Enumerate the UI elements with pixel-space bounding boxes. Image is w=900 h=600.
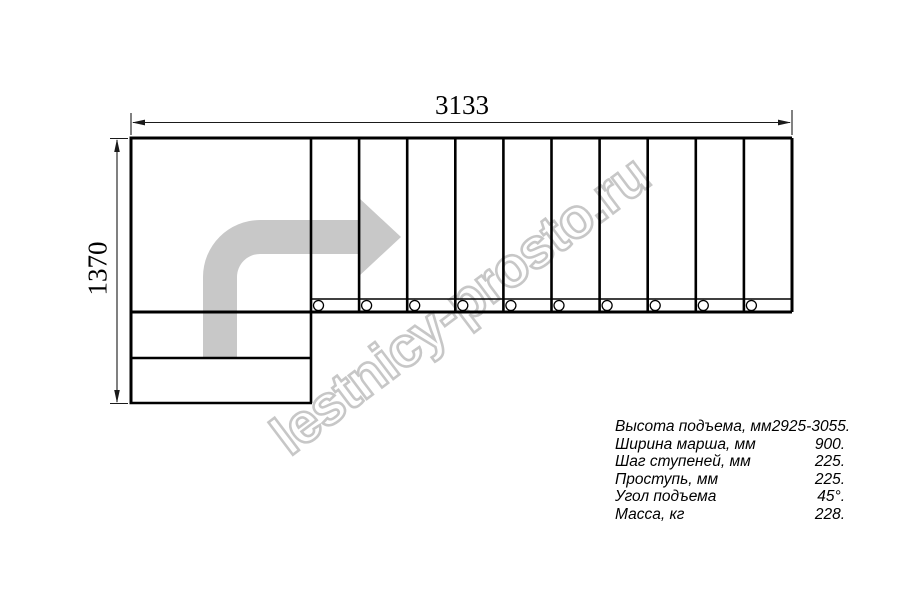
spec-row: Высота подъема, мм 2925-3055.	[615, 418, 845, 436]
spec-table: Высота подъема, мм 2925-3055. Ширина мар…	[615, 418, 845, 524]
tread-pin-circle	[314, 301, 324, 311]
spec-row: Угол подъема 45°.	[615, 488, 845, 506]
spec-label: Высота подъема, мм	[615, 418, 772, 436]
turn-right-arrow-icon	[203, 197, 401, 359]
tread-lines	[311, 138, 744, 403]
dim-arrow-down-icon	[114, 390, 120, 403]
tread-pin-circle	[362, 301, 372, 311]
tread-pin-circle	[650, 301, 660, 311]
width-dimension-label: 3133	[402, 90, 522, 121]
spec-value: 225.	[815, 471, 845, 489]
staircase-plan-drawing: lestnicy-prosto.ru	[0, 0, 900, 600]
spec-value: 225.	[815, 453, 845, 471]
spec-value: 900.	[815, 436, 845, 454]
spec-row: Ширина марша, мм 900.	[615, 436, 845, 454]
dim-arrow-right-icon	[778, 120, 791, 126]
tread-pin-circle	[458, 301, 468, 311]
spec-label: Угол подъема	[615, 488, 716, 506]
tread-pin-circle	[602, 301, 612, 311]
tread-pin-circle	[698, 301, 708, 311]
dim-arrow-up-icon	[114, 139, 120, 152]
spec-row: Проступь, мм 225.	[615, 471, 845, 489]
spec-row: Масса, кг 228.	[615, 506, 845, 524]
tread-pin-circle	[506, 301, 516, 311]
spec-label: Масса, кг	[615, 506, 684, 524]
spec-label: Проступь, мм	[615, 471, 718, 489]
spec-label: Ширина марша, мм	[615, 436, 756, 454]
tread-pin-circles	[314, 301, 757, 311]
spec-value: 2925-3055.	[772, 418, 850, 436]
spec-value: 45°.	[817, 488, 845, 506]
dim-arrow-left-icon	[132, 120, 145, 126]
spec-value: 228.	[815, 506, 845, 524]
tread-pin-circle	[746, 301, 756, 311]
tread-pin-circle	[554, 301, 564, 311]
spec-label: Шаг ступеней, мм	[615, 453, 751, 471]
height-dimension-label: 1370	[83, 228, 114, 310]
spec-row: Шаг ступеней, мм 225.	[615, 453, 845, 471]
tread-pin-circle	[410, 301, 420, 311]
